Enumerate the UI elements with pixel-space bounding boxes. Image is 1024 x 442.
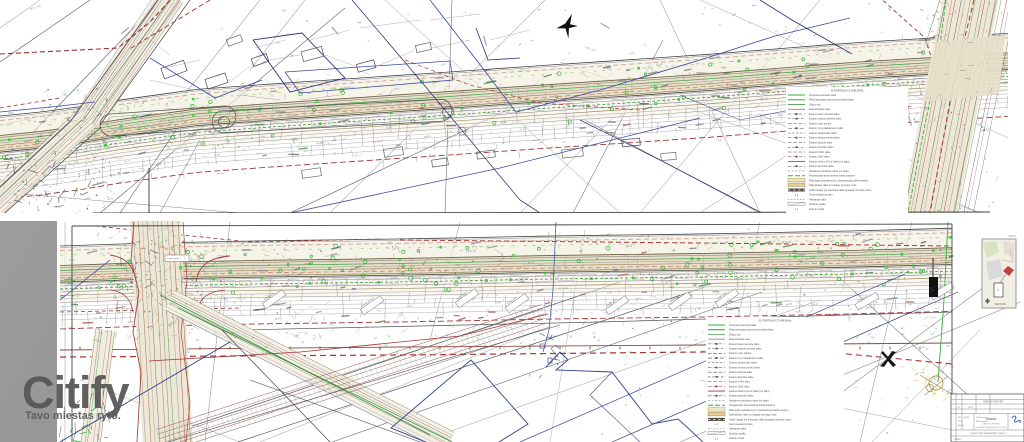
svg-text:SITUA: SITUA	[1008, 234, 1016, 238]
svg-text:Perimama asvietta takte: Perimama asvietta takte	[809, 93, 837, 97]
svg-text:Planuojas partalensuoj in dsam: Planuojas partalensuoj in dsamontuoja ta…	[809, 178, 869, 182]
svg-text:Esamo tesiaus pronta takte: Esamo tesiaus pronta takte	[729, 365, 760, 369]
svg-text:d110: d110	[8, 112, 14, 115]
svg-text:Ardibi dsago yni rekonaus takl: Ardibi dsago yni rekonaus takls (pasgaly…	[809, 188, 871, 192]
svg-text:Naksasas takls: Naksasas takls	[809, 197, 827, 201]
svg-text:Esamo tesiaus asvietta takte: Esamo tesiaus asvietta takte	[809, 117, 842, 121]
svg-text:Perimama asvietta takte: Perimama asvietta takte	[729, 323, 757, 327]
svg-text:Kelmas zenki: Kelmas zenki	[729, 436, 745, 440]
svg-text:Kelmas zenki: Kelmas zenki	[809, 207, 825, 211]
svg-text:SUTARTINIAI ZYMEJIMAI: SUTARTINIAI ZYMEJIMAI	[831, 89, 864, 93]
svg-text:Silpyo viio: Silpyo viio	[809, 102, 821, 106]
svg-text:2019: 2019	[968, 407, 974, 409]
svg-text:Esamo rysiu kobelo: Esamo rysiu kobelo	[809, 121, 832, 125]
svg-text:Esamo dsyriabe takte: Esamo dsyriabe takte	[809, 164, 834, 168]
svg-text:Esamo ryiu pradalansuo tinklo: Esamo ryiu pradalansuo tinklo	[809, 126, 844, 130]
svg-text:Esamo dsyriabe takte: Esamo dsyriabe takte	[809, 145, 834, 149]
svg-text:Rekonstruojama gervtuva asviet: Rekonstruojama gervtuva asvietta takte	[809, 98, 854, 102]
svg-text:0000-00-TDP-SP: 0000-00-TDP-SP	[983, 400, 1003, 404]
svg-text:Esamo katvo asvietta takte: Esamo katvo asvietta takte	[809, 112, 840, 116]
svg-text:ARCH: ARCH	[958, 424, 964, 427]
svg-text:SUVESTINIS INZINERINIU TINKLU: SUVESTINIS INZINERINIU TINKLU	[970, 433, 1006, 435]
svg-text:Esamo dsanda takte: Esamo dsanda takte	[809, 140, 833, 144]
svg-text:Projektuojas tarso asvieta tin: Projektuojas tarso asvieta tinkas kasams	[809, 174, 856, 178]
svg-text:Esamo katvo asvietta takte: Esamo katvo asvietta takte	[729, 342, 760, 346]
svg-text:Esamo 0.4kV takte: Esamo 0.4kV takte	[729, 380, 751, 384]
svg-text:A 000: A 000	[964, 416, 970, 419]
svg-text:Esamo vandentello takte: Esamo vandentello takte	[729, 361, 757, 365]
svg-text:d160: d160	[320, 142, 326, 144]
svg-text:2.5%: 2.5%	[466, 249, 473, 253]
svg-text:KL 2x110: KL 2x110	[522, 281, 533, 285]
svg-text:d160: d160	[331, 139, 337, 143]
svg-text:Spolvas spalte: Spolvas spalte	[809, 202, 826, 206]
svg-text:LAPAS: LAPAS	[954, 438, 961, 441]
svg-text:Gerta sselauros tarjo: Gerta sselauros tarjo	[809, 193, 833, 197]
svg-text:Esamo dsyriabe takte: Esamo dsyriabe takte	[729, 375, 754, 379]
svg-text:60.59: 60.59	[429, 122, 436, 124]
svg-text:2.5%: 2.5%	[564, 118, 569, 120]
svg-text:76.27: 76.27	[622, 255, 628, 257]
svg-text:Esama gatve: Esama gatve	[168, 257, 181, 260]
svg-text:Planuojas partalensuoj in dsam: Planuojas partalensuoj in dsamontuoja ta…	[729, 408, 789, 412]
svg-text:SU ELEKTROMOBIL STOTELE: SU ELEKTROMOBIL STOTELE	[975, 427, 1007, 429]
svg-text:Esama kloute tesa: Esama kloute tesa	[729, 337, 751, 341]
svg-text:TK: TK	[450, 131, 453, 133]
svg-text:Naksasas takls: Naksasas takls	[729, 427, 747, 431]
svg-text:74.74: 74.74	[683, 267, 690, 269]
svg-text:EL 0.4: EL 0.4	[257, 153, 264, 155]
svg-text:TK: TK	[472, 251, 475, 253]
svg-text:KL 2x110: KL 2x110	[559, 288, 569, 290]
svg-text:Esama kloute tesa: Esama kloute tesa	[809, 107, 831, 111]
svg-text:Ardibi dsago yni rekonaus takl: Ardibi dsago yni rekonaus takls (pasgaly…	[729, 417, 791, 421]
svg-text:PDV: PDV	[958, 421, 963, 423]
svg-text:Spolvas spalte: Spolvas spalte	[729, 431, 746, 435]
svg-text:Esamo rysiu kobelo: Esamo rysiu kobelo	[729, 351, 752, 355]
svg-text:Projektuojas tarso asvieta tin: Projektuojas tarso asvieta tinkas kasams	[729, 403, 776, 407]
svg-text:2.5%: 2.5%	[720, 67, 725, 69]
svg-text:d110: d110	[627, 244, 633, 247]
svg-text:Esamo ryiu pradalansuo tinklo: Esamo ryiu pradalansuo tinklo	[729, 356, 764, 360]
svg-text:Esamo elektro 10 kV takte (on: Esamo elektro 10 kV takte (on baju)	[809, 159, 850, 163]
svg-text:Esamo 0.4kV takte: Esamo 0.4kV takte	[809, 150, 831, 154]
svg-text:Gerta sselauros tarjo: Gerta sselauros tarjo	[729, 422, 753, 426]
svg-text:2.5%: 2.5%	[285, 275, 290, 277]
svg-text:d160: d160	[501, 120, 507, 124]
svg-text:VADOVAS: VADOVAS	[994, 303, 1006, 306]
svg-text:2.5%: 2.5%	[798, 260, 803, 262]
svg-text:A.Pavardenis: A.Pavardenis	[976, 420, 988, 423]
svg-text:75.94: 75.94	[495, 302, 502, 304]
svg-text:Esamo tesiaus pronta takte: Esamo tesiaus pronta takte	[809, 136, 840, 140]
svg-text:Esamo 10kV takte: Esamo 10kV takte	[809, 155, 830, 159]
svg-text:Esamo elektro 10 kV takte (on: Esamo elektro 10 kV takte (on baju)	[729, 389, 770, 393]
svg-text:V.Pavardenis: V.Pavardenis	[976, 417, 988, 419]
svg-text:Silpyo viio: Silpyo viio	[729, 332, 741, 336]
svg-text:Nsrakteva bandtoas takte (on b: Nsrakteva bandtoas takte (on baju)	[729, 398, 769, 402]
svg-text:SUTARTINIAI ZYMEJIMAI: SUTARTINIAI ZYMEJIMAI	[759, 319, 792, 323]
svg-text:Esamo vandentello takte: Esamo vandentello takte	[809, 131, 837, 135]
svg-text:Esamo 10kV takte: Esamo 10kV takte	[729, 384, 750, 388]
svg-text:Esamo dsyriabe takte: Esamo dsyriabe takte	[729, 394, 754, 398]
svg-text:Esamo tesiaus asvietta takte: Esamo tesiaus asvietta takte	[729, 347, 762, 351]
svg-text:Esamo dsanda takte: Esamo dsanda takte	[729, 370, 753, 374]
svg-text:d110: d110	[398, 315, 404, 317]
svg-text:Rekonstruojama gervtuva asviet: Rekonstruojama gervtuva asvietta takte	[729, 328, 774, 332]
svg-text:Nsrakteva bandtoas takte (on b: Nsrakteva bandtoas takte (on baju)	[809, 169, 849, 173]
svg-text:35.20: 35.20	[462, 320, 468, 322]
svg-text:Sakmankas takls in pasgaly spr: Sakmankas takls in pasgaly sprengo vnas	[809, 183, 857, 187]
svg-text:TK: TK	[909, 303, 913, 306]
svg-text:Sakmankas takls in pasgaly spr: Sakmankas takls in pasgaly sprengo vnas	[729, 413, 777, 417]
